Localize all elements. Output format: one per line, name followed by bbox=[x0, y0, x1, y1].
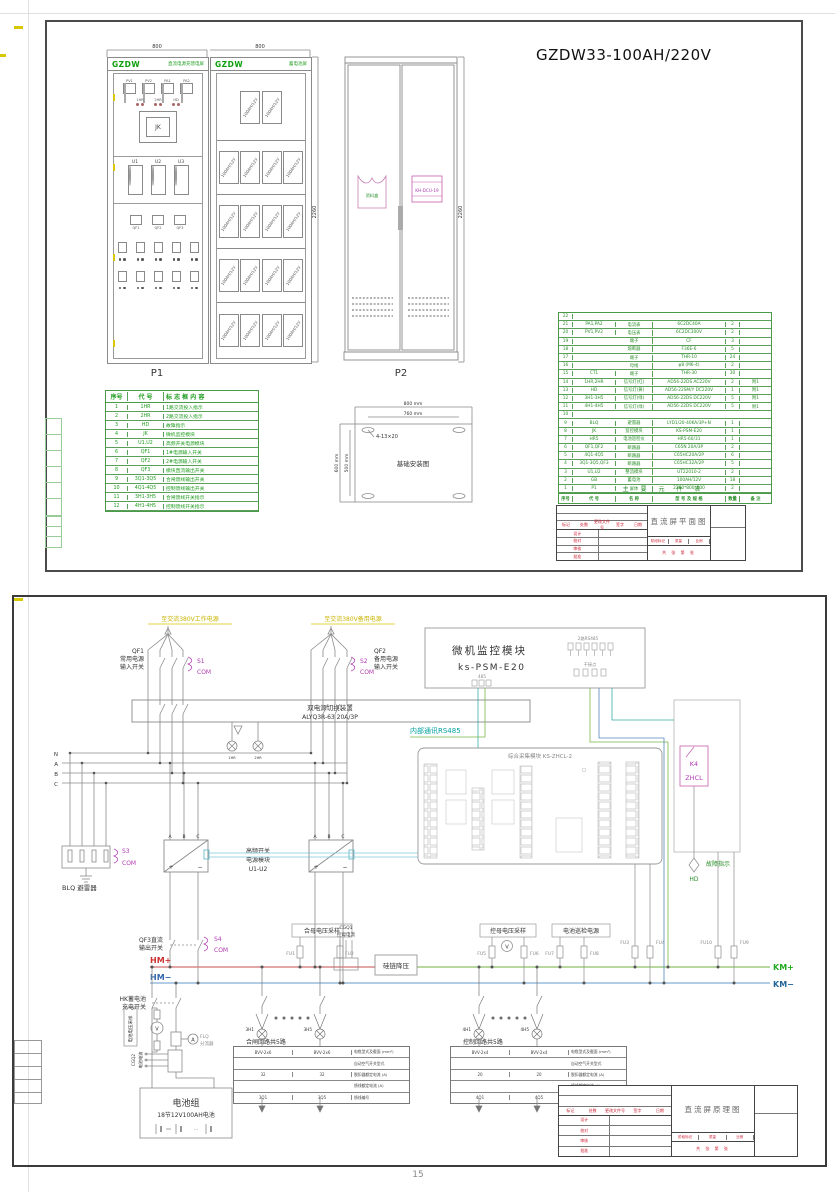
battery-cell: 100AH/12V bbox=[262, 314, 282, 347]
parts-table-row: 7 HR5 电池巡检仪 HR5-60/31 1 bbox=[559, 436, 771, 444]
parts-table-row: 6 QF1,QF2 断路器 C65N 20A/3P 2 bbox=[559, 444, 771, 452]
battery-cell: 100AH/12V bbox=[262, 259, 282, 292]
signature-strip bbox=[45, 418, 62, 516]
battery-cell: 100AH/12V bbox=[240, 91, 260, 124]
marking-table-row: 11 3H1-3H5 合闸馈线开关指示 bbox=[106, 493, 258, 502]
marking-table-row: 12 4H1-4H5 控制馈线开关指示 bbox=[106, 502, 258, 511]
battery-cell: 100AH/12V bbox=[219, 151, 239, 184]
battery-shelf-3: 100AH/12V100AH/12V100AH/12V100AH/12V bbox=[217, 194, 305, 249]
jk-monitor-display: JK bbox=[146, 117, 170, 137]
company-block bbox=[755, 1086, 797, 1156]
cabinet-p1: GZDW 直流电源充馈电屏 PV1 PV2 bbox=[107, 57, 209, 364]
company-block bbox=[711, 506, 745, 560]
stage-row: 阶段标记质量比例 bbox=[648, 536, 710, 545]
panel-section-feeders: QF1 QF2 QF3 bbox=[114, 203, 202, 358]
parts-table-row: 22 bbox=[559, 313, 771, 321]
panel-indicator: 2HR bbox=[154, 98, 162, 106]
battery-cell: 100AH/12V bbox=[283, 151, 303, 184]
role-check: 校对 bbox=[559, 1126, 671, 1136]
meter-icon bbox=[142, 83, 155, 94]
indicator-lamp-icon bbox=[172, 103, 180, 106]
sheet2-title-block: 标记处数更改文件号签字日期 设计 校对 审核 批准 直流屏原理图 阶段标记质量比… bbox=[558, 1085, 798, 1157]
breaker-icon bbox=[130, 215, 142, 225]
jk-monitor-outer: JK bbox=[139, 111, 177, 143]
meter-row: PV1 PV2 PA1 bbox=[114, 79, 202, 94]
module-icon bbox=[174, 165, 189, 195]
marking-table-row: 5 U1,U2 高频开关电源模块 bbox=[106, 439, 258, 448]
marking-table-row: 1 1HR 1路交流投入指示 bbox=[106, 403, 258, 412]
revision-header: 标记处数更改文件号签字日期 bbox=[559, 1107, 671, 1116]
feeder-table-row: 3Q1 3Q5 馈线编号 bbox=[234, 1093, 409, 1103]
indicator-label: 2HR bbox=[154, 98, 161, 102]
breaker-icon bbox=[152, 215, 164, 225]
rectifier-module-front: U3 bbox=[174, 160, 189, 195]
battery-cell: 100AH/12V bbox=[240, 259, 260, 292]
battery-cell: 100AH/12V bbox=[219, 205, 239, 238]
breaker-label: QF3 bbox=[177, 226, 184, 230]
parts-table-row: 15 CT1 端子 THR-30 30 bbox=[559, 370, 771, 378]
parts-table-body: 22 21 PA1,PA2 电流表 6C2DC40A 2 bbox=[559, 313, 771, 493]
battery-cell: 100AH/12V bbox=[240, 151, 260, 184]
battery-shelf-4: 100AH/12V100AH/12V100AH/12V100AH/12V bbox=[217, 248, 305, 303]
parts-table-row: 8 JK 监控模块 KS-PSM-E20 1 bbox=[559, 428, 771, 436]
parts-table-header: 序号 代 号 名 称 型 号 及 规 格 数量 备 注 bbox=[559, 493, 771, 503]
battery-shelf-5: 100AH/12V100AH/12V100AH/12V100AH/12V bbox=[217, 302, 305, 358]
panel-meter: PV1 bbox=[123, 79, 136, 94]
parts-table-row: 19 端子 CF 3 bbox=[559, 338, 771, 346]
battery-cell: 100AH/12V bbox=[283, 259, 303, 292]
parts-table-row: 10 bbox=[559, 411, 771, 419]
brand-logo: GZDW bbox=[215, 60, 243, 69]
parts-table-row: 18 熔断器 F36E-6 5 bbox=[559, 346, 771, 354]
drawing-page: 800 800 2260 2260 P1 P2 资料盒 KH-DCU-19 bbox=[0, 0, 835, 1192]
feeder-lamp-row-2 bbox=[114, 287, 202, 290]
module-icon bbox=[128, 165, 143, 195]
marking-table-header: 序号 代 号 标 志 框 内 容 bbox=[106, 391, 258, 403]
role-check: 校对 bbox=[557, 538, 647, 546]
rectifier-module-front: U1 bbox=[128, 160, 143, 195]
cabinet-p1-panel: PV1 PV2 PA1 bbox=[113, 73, 203, 359]
cabinet-p1-name: 直流电源充馈电屏 bbox=[168, 61, 204, 67]
marking-table-row: 8 QF3 模块直流输出开关 bbox=[106, 466, 258, 475]
battery-cell: 100AH/12V bbox=[262, 91, 282, 124]
parts-table-row: 12 3H1-3H5 信号灯(绿) AD56-22DS DC220V 5 附1 bbox=[559, 395, 771, 403]
parts-table-row: 4 3Q1-3Q5,QF3 断路器 C65HC32A/2P 5 bbox=[559, 460, 771, 468]
parts-table-caption: 主 要 元 件 表 bbox=[558, 484, 770, 493]
input-breaker: QF1 bbox=[130, 215, 142, 230]
parts-table-row: 14 1HR,2HR 信号灯(红) AD56-22DS AC220V 2 附1 bbox=[559, 379, 771, 387]
brand-logo: GZDW bbox=[112, 60, 140, 69]
battery-cell: 100AH/12V bbox=[283, 205, 303, 238]
indicator-row: 1HR 2HR HD bbox=[114, 98, 202, 106]
role-approve: 批准 bbox=[559, 1147, 671, 1156]
role-design: 设计 bbox=[559, 1116, 671, 1126]
marking-table-row: 2 2HR 2路交流投入指示 bbox=[106, 412, 258, 421]
indicator-lamp-icon bbox=[136, 103, 144, 106]
cabinet-battery-header: GZDW 蓄电池屏 bbox=[211, 58, 311, 71]
input-breaker: QF2 bbox=[152, 215, 164, 230]
meter-icon bbox=[161, 83, 174, 94]
rectifier-module-front: U2 bbox=[151, 160, 166, 195]
marking-table-row: 9 3Q1-3Q5 合闸馈线输出开关 bbox=[106, 475, 258, 484]
feeder-table-row: 自动空气开关型式 bbox=[234, 1058, 409, 1069]
feeder-table-row: 32 32 脱扣器额定电流 (A) bbox=[234, 1070, 409, 1081]
role-review: 审核 bbox=[559, 1136, 671, 1146]
indicator-label: 1HR bbox=[136, 98, 143, 102]
marking-table-row: 7 QF2 2#电源输入开关 bbox=[106, 457, 258, 466]
cabinet-battery-name: 蓄电池屏 bbox=[289, 61, 307, 67]
signature-strip bbox=[14, 1040, 42, 1104]
breaker-row: QF1 QF2 QF3 bbox=[114, 215, 202, 230]
meter-icon bbox=[180, 83, 193, 94]
battery-cell: 100AH/12V bbox=[262, 205, 282, 238]
battery-shelf-1: 100AH/12V100AH/12V bbox=[217, 74, 305, 141]
battery-shelf-2: 100AH/12V100AH/12V100AH/12V100AH/12V bbox=[217, 140, 305, 195]
sheet-count: 共 张 第 张 bbox=[672, 1141, 754, 1156]
panel-meter: PA2 bbox=[180, 79, 193, 94]
feeder-table-row: 自动空气开关型式 bbox=[451, 1058, 626, 1069]
page-number: 15 bbox=[405, 1170, 431, 1180]
parts-table-row: 21 PA1,PA2 电流表 6C2DC40A 2 bbox=[559, 321, 771, 329]
indicator-label: HD bbox=[173, 98, 178, 102]
battery-cell: 100AH/12V bbox=[283, 314, 303, 347]
marking-table-row: 4 JK 微机监控模块 bbox=[106, 430, 258, 439]
breaker-icon bbox=[174, 215, 186, 225]
feeder-lamp-row-1 bbox=[114, 258, 202, 261]
panel-meter: PA1 bbox=[161, 79, 174, 94]
feeder-table-row: 馈线额定电流 (A) bbox=[234, 1081, 409, 1092]
closing-feeder-table: BVV-2x6 BVV-2x6 电缆型式及截面 (mm²) 自动空气开关型式 3… bbox=[233, 1046, 410, 1104]
parts-table: 22 21 PA1,PA2 电流表 6C2DC40A 2 bbox=[558, 312, 772, 504]
marking-table: 序号 代 号 标 志 框 内 容 1 1HR 1路交流投入指示 2 2HR 2路… bbox=[105, 390, 259, 512]
revision-header: 标记处数更改文件号签字日期 bbox=[557, 521, 647, 530]
battery-cell: 100AH/12V bbox=[262, 151, 282, 184]
parts-table-row: 20 PV1,PV2 电压表 6C2DC300V 2 bbox=[559, 329, 771, 337]
parts-table-row: 16 母线 φ8 (M6-4) 2 bbox=[559, 362, 771, 370]
breaker-label: QF2 bbox=[155, 226, 162, 230]
panel-indicator: 1HR bbox=[136, 98, 144, 106]
marking-table-row: 3 HD 故障指示 bbox=[106, 421, 258, 430]
parts-table-row: 13 HD 信号灯(黄) AD56-22SM/Y DC220V 1 附1 bbox=[559, 387, 771, 395]
module-icon bbox=[151, 165, 166, 195]
signature-strip bbox=[45, 516, 62, 548]
breaker-label: QF1 bbox=[133, 226, 140, 230]
role-approve: 批准 bbox=[557, 553, 647, 560]
feeder-switch-row-1 bbox=[114, 242, 202, 253]
marking-table-row: 10 4Q1-4Q5 控制馈线输出开关 bbox=[106, 484, 258, 493]
sheet-count: 共 张 第 张 bbox=[648, 545, 710, 560]
marking-table-body: 1 1HR 1路交流投入指示 2 2HR 2路交流投入指示 3 HD 故障指示 bbox=[106, 403, 258, 511]
panel-section-modules: U1 U2 U3 bbox=[114, 156, 202, 204]
feeder-table-row: BVV-2x4 BVV-2x4 电缆型式及截面 (mm²) bbox=[451, 1047, 626, 1058]
input-breaker: QF3 bbox=[174, 215, 186, 230]
battery-cell: 100AH/12V bbox=[219, 259, 239, 292]
sheet2-drawing-title: 直流屏原理图 bbox=[672, 1086, 754, 1132]
module-row: U1 U2 U3 bbox=[114, 160, 202, 195]
parts-table-row: 17 端子 THR-10 24 bbox=[559, 354, 771, 362]
feeder-table-row: 20 20 脱扣器额定电流 (A) bbox=[451, 1070, 626, 1081]
parts-table-row: 11 4H1-4H5 信号灯(绿) AD56-22DS DC220V 5 附1 bbox=[559, 403, 771, 411]
cabinet-p1-header: GZDW 直流电源充馈电屏 bbox=[108, 58, 208, 71]
battery-cell: 100AH/12V bbox=[240, 314, 260, 347]
battery-cell: 100AH/12V bbox=[240, 205, 260, 238]
feeder-switch-row-2 bbox=[114, 271, 202, 282]
sheet2-frame bbox=[12, 595, 827, 1167]
sheet1-drawing-title: 直流屏平面图 bbox=[648, 506, 710, 536]
battery-rack: 100AH/12V100AH/12V 100AH/12V100AH/12V100… bbox=[216, 73, 306, 359]
parts-table-row: 5 4Q1-4Q5 断路器 C65HC20A/2P 6 bbox=[559, 452, 771, 460]
stage-row: 阶段标记质量比例 bbox=[672, 1132, 754, 1141]
marking-table-row: 6 QF1 1#电源输入开关 bbox=[106, 448, 258, 457]
panel-indicator: HD bbox=[172, 98, 180, 106]
panel-meter: PV2 bbox=[142, 79, 155, 94]
meter-icon bbox=[123, 83, 136, 94]
feeder-table-row: BVV-2x6 BVV-2x6 电缆型式及截面 (mm²) bbox=[234, 1047, 409, 1058]
role-design: 设计 bbox=[557, 530, 647, 538]
parts-table-row: 3 U1,U2 整流模块 UT22010-2 2 bbox=[559, 469, 771, 477]
panel-section-meters: PV1 PV2 PA1 bbox=[114, 74, 202, 157]
cabinet-battery: GZDW 蓄电池屏 100AH/12V100AH/12V 100AH/12V10… bbox=[210, 57, 312, 364]
sheet1-title-block: 标记处数更改文件号签字日期 设计 校对 审核 批准 直流屏平面图 阶段标记质量比… bbox=[556, 505, 746, 561]
battery-cell: 100AH/12V bbox=[219, 314, 239, 347]
indicator-lamp-icon bbox=[154, 103, 162, 106]
parts-table-row: 9 BLQ 避雷器 LYD1/20-40KA/3P+N 1 bbox=[559, 419, 771, 427]
role-review: 审核 bbox=[557, 546, 647, 554]
drawing-main-title: GZDW33-100AH/220V bbox=[536, 46, 766, 64]
